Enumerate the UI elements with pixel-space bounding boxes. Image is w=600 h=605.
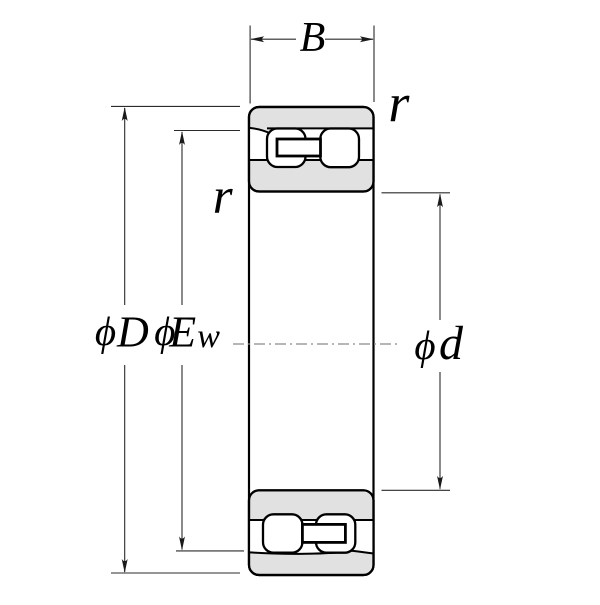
svg-text:d: d bbox=[439, 317, 464, 370]
svg-text:r: r bbox=[388, 73, 410, 133]
svg-text:ϕ: ϕ bbox=[95, 308, 116, 354]
svg-text:r: r bbox=[213, 169, 233, 225]
svg-text:B: B bbox=[300, 15, 326, 61]
svg-text:ϕ: ϕ bbox=[414, 322, 435, 368]
svg-text:D: D bbox=[116, 308, 149, 357]
svg-text:w: w bbox=[197, 318, 220, 355]
svg-text:E: E bbox=[168, 308, 196, 357]
